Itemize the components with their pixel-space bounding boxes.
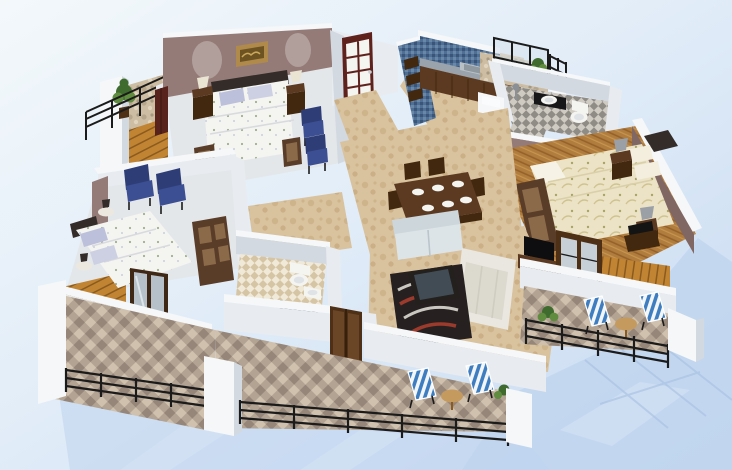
- lamp-glow: [285, 33, 311, 67]
- terrace-east-post: [506, 388, 532, 448]
- terrace-west-parapet: [38, 280, 66, 404]
- bath2-east-wall: [326, 246, 342, 310]
- parapet-side: [696, 318, 704, 362]
- door-handle: [368, 70, 372, 74]
- lamp-glow: [192, 41, 222, 79]
- terrace-gate-post: [204, 356, 242, 436]
- table-lamp: [102, 199, 110, 208]
- coffee-table: [408, 265, 460, 305]
- floor-plan-render: [0, 0, 732, 470]
- table-lamp: [80, 253, 88, 262]
- table-lamp: [640, 206, 654, 220]
- table-lamp: [614, 138, 628, 152]
- floor-plan-svg: [0, 0, 732, 470]
